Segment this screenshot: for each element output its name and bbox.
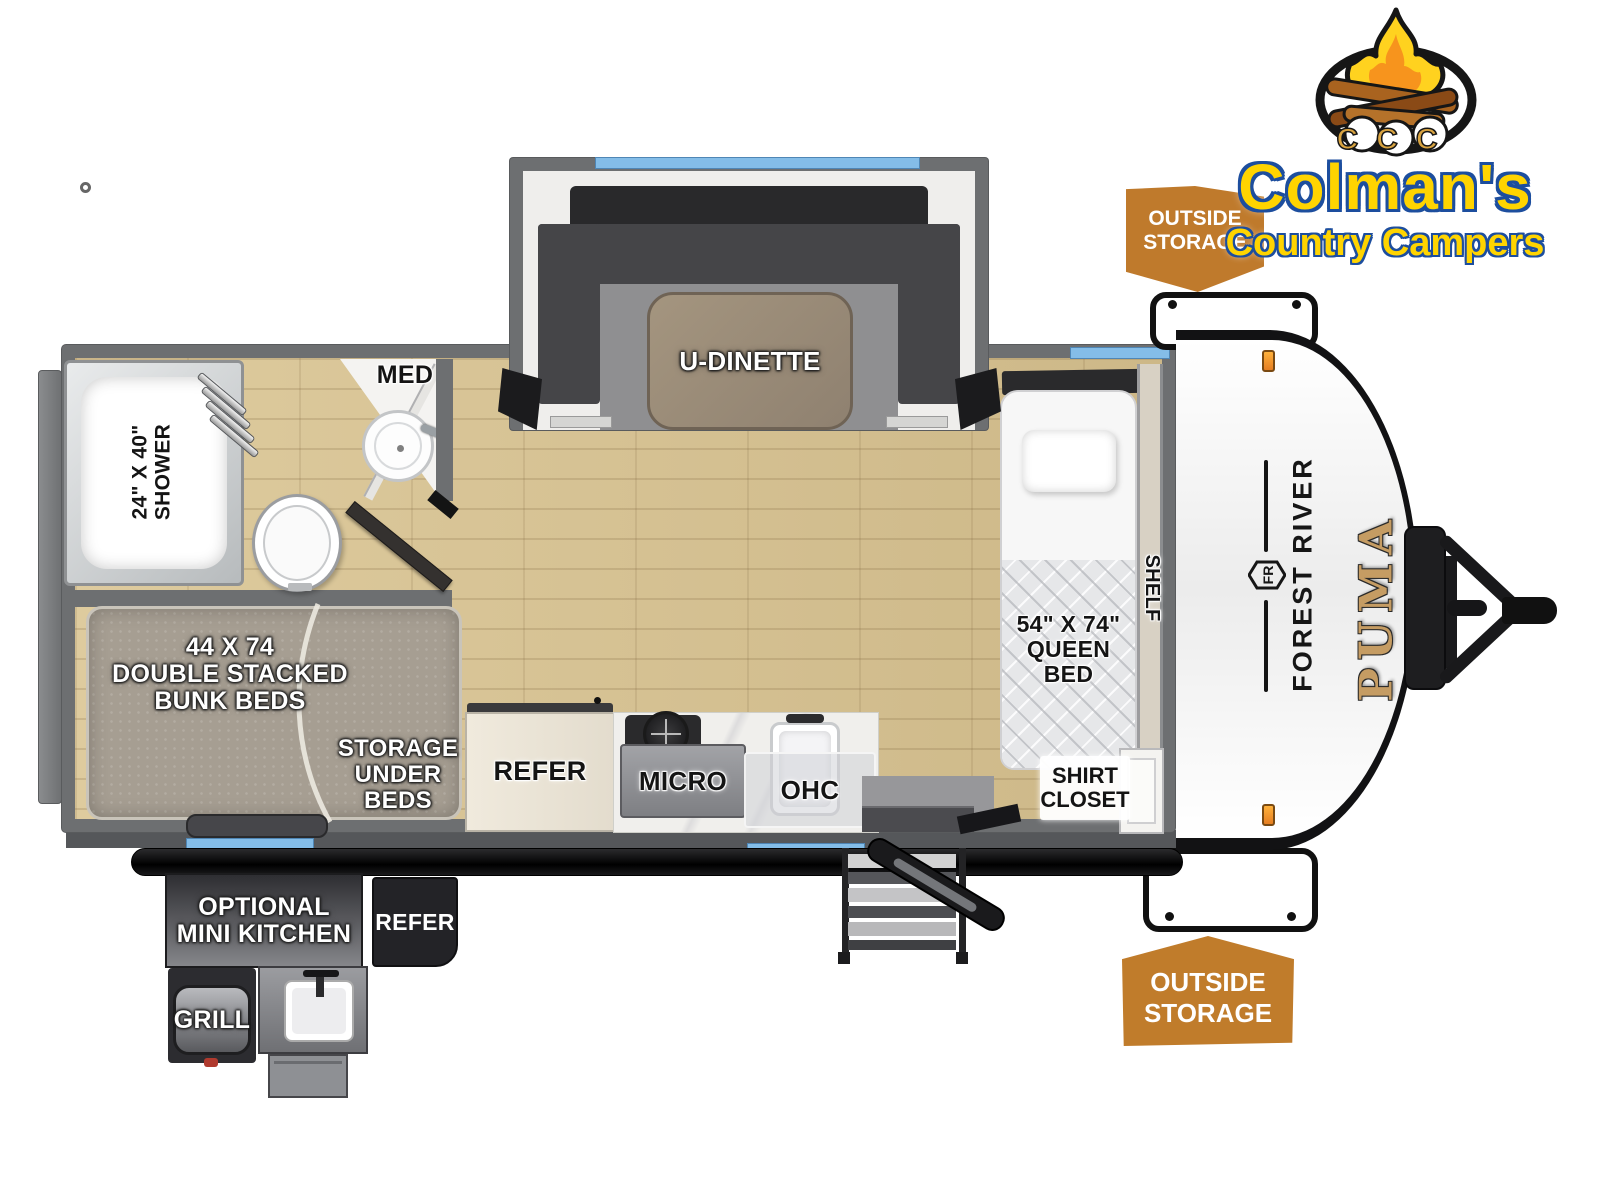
campfire-logo-icon: CCC [1298,4,1494,164]
overhead-cabinet: OHC [744,752,876,828]
clearance-light-icon [1262,804,1275,826]
bolt-icon [1287,912,1296,921]
closet-text: CLOSET [1040,788,1129,812]
window [595,157,920,169]
outside-refer-label: REFER [375,910,454,935]
grill-knob-icon [204,1058,218,1067]
refer-label: REFER [493,757,586,786]
slideout-sill [886,416,948,428]
bunk-step-board [186,814,328,838]
badge-line: STORAGE [1144,998,1272,1029]
step-tread [848,906,956,918]
faucet-icon [303,970,339,977]
micro-label: MICRO [639,767,727,795]
bed-size-text: 54" X 74" [1002,612,1135,637]
clearance-light-icon [1262,350,1275,372]
step-tread [848,940,956,950]
outside-grill: GRILL [168,968,256,1063]
storage-text: UNDER [330,762,466,788]
propane-tank-cover [1404,526,1446,690]
bathroom-sink [362,410,434,482]
hitch-coupler [1502,597,1557,624]
dealer-tagline: Country Campers [1212,222,1558,265]
fr-text: FR [1260,566,1276,585]
rear-bumper [38,370,62,804]
closet-door [1127,758,1156,824]
badge-line: OUTSIDE [1150,967,1266,998]
refrigerator: REFER [465,712,615,832]
slideout-sill [550,416,612,428]
bunk-beds-label: 44 X 74 DOUBLE STACKED BUNK BEDS [110,634,350,715]
sink-drain [397,445,404,452]
dinette-seat [538,224,600,404]
mini-kitchen-text: OPTIONAL [198,894,330,921]
faucet-stem [316,977,324,997]
forest-river-decal: FOREST RIVER [1288,456,1317,692]
step-foot [956,952,968,964]
tongue-jack [1447,600,1487,616]
step-tread [848,922,956,936]
puma-decal: PUMA [1353,512,1402,702]
bunk-text: DOUBLE STACKED [110,661,350,688]
bolt-icon [1292,300,1301,309]
dinette-table: U-DINETTE [647,292,853,430]
outside-storage-badge-bottom: OUTSIDE STORAGE [1122,936,1294,1046]
awning-tube [131,848,1183,876]
storage-text: STORAGE [330,736,466,762]
optional-mini-kitchen-panel: OPTIONAL MINI KITCHEN [165,873,363,968]
toilet [252,494,342,592]
shower-label: 24" X 40" SHOWER [129,424,174,520]
pillow [1022,430,1116,492]
toilet-lid [263,505,331,581]
window [1070,347,1170,359]
floorplan-canvas: OUTSIDE STORAGE CCC Colman's Country Cam… [0,0,1600,1200]
bathroom-wall [436,359,453,501]
queen-bed-label: 54" X 74" QUEEN BED [1002,612,1135,686]
dinette-seat [538,224,960,284]
storage-text: BEDS [330,788,466,814]
bolt-icon [1168,300,1177,309]
toilet-hinge [288,583,312,591]
mini-kitchen-text: MINI KITCHEN [177,921,351,948]
med-cabinet-label: MED [368,362,442,389]
storage-under-beds-label: STORAGE UNDER BEDS [330,736,466,814]
grill-body: GRILL [173,985,251,1055]
shower-text: SHOWER [151,424,174,520]
step-foot [838,952,850,964]
dealer-name: Colman's [1212,150,1558,224]
closet-text: SHIRT [1052,764,1118,788]
bed-text: BED [1002,662,1135,687]
bed-text: QUEEN [1002,637,1135,662]
shower-drain [80,182,91,193]
outside-storage-drawer [268,1054,348,1098]
refrigerator-hinge [594,697,601,704]
decal-swoosh [1264,460,1268,552]
shelf-label: SHELF [1140,554,1162,621]
bunk-size-text: 44 X 74 [110,634,350,661]
dinette-slideout: U-DINETTE [510,158,988,430]
ohc-label: OHC [781,776,840,804]
forest-river-emblem-icon: FR [1248,560,1286,590]
microwave: MICRO [620,744,746,818]
u-dinette-label: U-DINETTE [679,347,820,375]
dinette-seat [898,224,960,404]
outside-refrigerator: REFER [372,877,458,967]
shirt-closet-label: SHIRT CLOSET [1040,756,1130,820]
faucet-icon [786,714,824,723]
grill-label: GRILL [174,1007,251,1034]
shower-size-text: 24" X 40" [128,425,151,520]
bunk-text: BUNK BEDS [110,688,350,715]
bolt-icon [1165,912,1174,921]
decal-swoosh [1264,600,1268,692]
queen-bed [1000,390,1137,770]
